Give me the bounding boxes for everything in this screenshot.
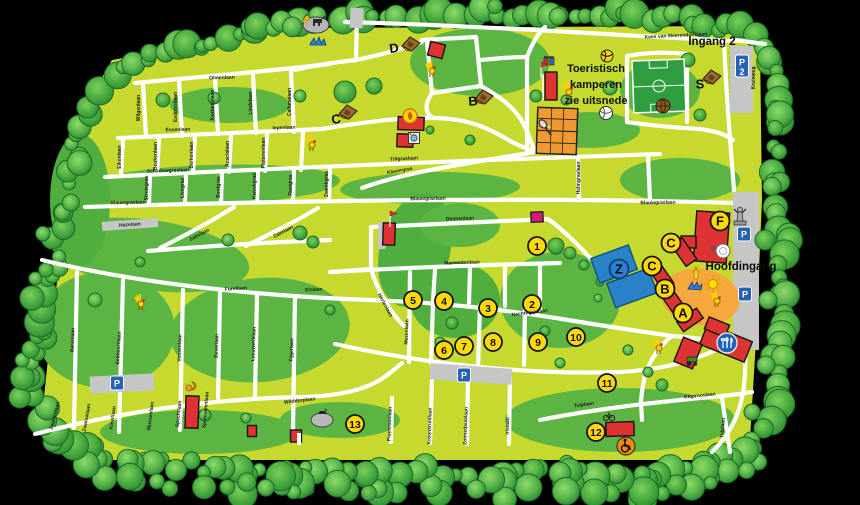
sun-core (709, 280, 718, 289)
tree-icon (643, 367, 653, 377)
building-flag (383, 223, 396, 245)
street-label: Liesgras (180, 178, 186, 199)
street-label: Vossenlaan (177, 334, 184, 362)
building-12 (606, 422, 634, 437)
parking-sign-label: P (742, 290, 748, 300)
squirrel-head (185, 383, 188, 386)
petting-zoo-icon (303, 16, 329, 33)
bottle-body (694, 270, 698, 279)
road (478, 305, 480, 368)
street-label: Kruinweg (751, 67, 757, 90)
tree-icon (294, 90, 306, 102)
letter-marker-B: B (656, 280, 675, 299)
entrance-label: Hoofdingang (706, 261, 777, 273)
number-marker-13: 13 (346, 415, 364, 433)
tree-icon (757, 356, 775, 374)
parking-sign: P (738, 227, 751, 241)
street-label: Zwenkgras (324, 171, 330, 197)
marker-letter-text: C (647, 259, 657, 274)
letter-marker-B: B (468, 93, 479, 109)
tree-icon (564, 247, 576, 259)
map-canvas: PPPPP2 DCBSFCCBAZ12345678910111213 Olmen… (0, 0, 860, 505)
fire-badge-icon (403, 109, 417, 123)
street-label: Irislaan (505, 417, 512, 435)
building-near-D (427, 41, 445, 58)
parking-sign-label: P (739, 58, 745, 68)
tree-icon (135, 257, 145, 267)
road (431, 302, 433, 363)
marker-number-text: 6 (441, 345, 447, 357)
tennis-ball (547, 125, 551, 129)
street-label: Berenlaan (70, 328, 77, 352)
marker-number-text: 11 (601, 378, 612, 390)
spoon (725, 337, 728, 342)
tree-icon (446, 317, 458, 329)
plate (716, 244, 730, 258)
tree-icon (257, 479, 274, 496)
tree-icon (67, 150, 92, 175)
entrance-label: Ingang 2 (688, 36, 735, 48)
marker-number-text: 9 (535, 337, 541, 349)
tourist-camping-note: Toeristisch (567, 63, 625, 75)
marker-number-text: 12 (590, 427, 602, 439)
tree-icon (763, 177, 781, 195)
tree-icon (361, 485, 376, 500)
tree-icon (771, 144, 786, 159)
tree-icon (744, 404, 760, 420)
number-marker-9: 9 (529, 333, 547, 351)
road (433, 270, 435, 301)
wheelchair-badge-icon (617, 437, 635, 455)
tennis-court (536, 107, 578, 154)
tree-icon (759, 291, 777, 309)
letter-marker-F: F (711, 212, 730, 231)
tree-icon (467, 480, 485, 498)
tree-icon (36, 226, 50, 240)
rooster-body (429, 68, 435, 74)
street-label: Essenlaan (165, 127, 190, 134)
street-label: Iepenlaan (272, 125, 295, 132)
tree-icon (117, 463, 144, 490)
tree-icon (366, 78, 382, 94)
washer-knob (410, 133, 412, 135)
marker-letter-text: A (678, 306, 688, 321)
tree-icon (465, 135, 475, 145)
tree-icon (664, 5, 682, 23)
parking-sign-label: P (461, 371, 467, 381)
marker-letter-text: Z (615, 262, 623, 277)
tourist-camping-note: kamperen (570, 79, 622, 91)
tree-icon (307, 236, 319, 248)
number-marker-1: 1 (528, 237, 546, 255)
street-label: Beverlaan (214, 334, 221, 358)
building-magenta (531, 212, 544, 223)
parking-sign: P2 (736, 55, 749, 77)
grass-patch (170, 87, 290, 123)
street-label: Pioenrooslaan (386, 407, 393, 442)
tree-icon (555, 358, 565, 368)
building-west (185, 396, 199, 428)
street-label: Blauwgraslaan (410, 196, 445, 203)
cutlery-badge-icon (717, 333, 737, 353)
marker-letter-text: C (666, 236, 676, 251)
street-label: Bentgras (216, 176, 222, 198)
street-label: Blauwgraslaan (640, 200, 675, 207)
head (624, 439, 627, 442)
marker-letter-text: B (660, 282, 669, 297)
tree-icon (149, 474, 164, 489)
road (301, 131, 303, 170)
parking-sign-number: 2 (739, 67, 744, 77)
road (641, 403, 642, 420)
street-label: Berkenlaan (189, 142, 195, 169)
tree-icon (165, 459, 186, 480)
tree-icon (581, 479, 608, 505)
tree-icon (241, 413, 251, 423)
marker-letter-text: S (696, 77, 705, 92)
street-label: Struisgras (144, 175, 150, 200)
street-label: Beukenlaan (153, 142, 159, 170)
street-label: Blauwgraslaan (110, 200, 145, 207)
number-marker-4: 4 (435, 292, 453, 310)
street-label: Kastanjelaan (210, 90, 216, 121)
tree-icon (20, 286, 45, 311)
tree-icon (426, 126, 434, 134)
street-label: Kweekgras (252, 173, 258, 200)
rooster-comb (433, 66, 436, 69)
street-label: Dennenlaan (446, 216, 475, 223)
rooster-body (138, 301, 144, 307)
street-label: Raaigras (288, 174, 294, 195)
tree-icon (293, 226, 307, 240)
number-marker-12: 12 (587, 423, 605, 441)
marker-number-text: 7 (461, 341, 467, 353)
number-marker-3: 3 (479, 299, 497, 317)
tractor-wheel (694, 362, 697, 365)
road (143, 83, 146, 137)
tree-icon (549, 8, 566, 25)
campground-map: PPPPP2 DCBSFCCBAZ12345678910111213 Olmen… (0, 0, 860, 505)
grass-patch (620, 158, 740, 202)
tree-icon (282, 17, 302, 37)
number-marker-11: 11 (598, 374, 616, 392)
tractor-wheel (687, 361, 692, 366)
street-label: Eikenlaan (117, 145, 123, 168)
marker-letter-text: F (716, 214, 724, 229)
football-brown-icon (656, 99, 670, 113)
marker-number-text: 1 (534, 241, 540, 253)
parking-sign-label: P (114, 379, 120, 389)
tree-icon (530, 90, 542, 102)
tree-icon (704, 476, 717, 489)
road (293, 297, 295, 430)
number-marker-6: 6 (435, 341, 453, 359)
tree-icon (88, 293, 102, 307)
rooster-comb (718, 296, 721, 299)
volleyball-white-icon (600, 107, 613, 120)
street-label: Lindelaan (248, 91, 254, 114)
letter-marker-Z: Z (610, 260, 629, 279)
rooster-body (309, 142, 315, 148)
road (331, 269, 371, 272)
statue-head (738, 207, 743, 212)
street-label: Tijgerlaan (289, 338, 296, 362)
tree-icon (623, 345, 633, 355)
rooster-comb (660, 343, 663, 346)
marker-letter-text: B (468, 93, 479, 109)
statue-base (734, 221, 746, 225)
rooster-comb (313, 140, 316, 143)
washer-door (411, 135, 417, 141)
tree-icon (193, 476, 216, 499)
road (469, 268, 470, 303)
street-label: Olmenlaan (209, 75, 235, 82)
volleyball-yellow-icon (601, 50, 613, 62)
building-small (248, 426, 257, 437)
parking-sign: P (739, 287, 752, 301)
number-marker-7: 7 (455, 337, 473, 355)
tree-icon (488, 0, 503, 14)
marker-number-text: 5 (410, 295, 416, 307)
playset-blue (550, 58, 554, 65)
tree-icon (552, 477, 579, 504)
street-label: Esdoornlaan (173, 92, 179, 122)
street-label: Callunalaan (287, 88, 293, 116)
parking-sign: P (111, 376, 124, 390)
street-label: Marmottenlaan (444, 259, 480, 266)
washer-icon (409, 133, 420, 144)
letter-marker-S: S (696, 77, 705, 92)
letter-marker-C: C (643, 257, 662, 276)
tree-icon (62, 194, 79, 211)
road (409, 272, 410, 362)
street-label: Platanenlaan (261, 138, 267, 169)
tree-icon (39, 263, 53, 277)
rooster-comb (142, 299, 145, 302)
number-marker-10: 10 (567, 328, 585, 346)
tree-icon (334, 81, 356, 103)
tree-icon (594, 294, 602, 302)
street-label: Leeuweriklaan (250, 327, 257, 362)
parking-sign-label: P (741, 230, 747, 240)
number-marker-8: 8 (484, 333, 502, 351)
street-label: Acacialaan (225, 141, 231, 167)
tree-icon (325, 305, 335, 315)
marker-number-text: 13 (349, 419, 361, 431)
north-drive (349, 8, 363, 29)
marker-number-text: 3 (485, 303, 491, 315)
street-label: Wilgenlaan (136, 95, 142, 121)
tree-icon (156, 93, 170, 107)
parking-sign: P (458, 368, 471, 382)
street-label: Helmgraslaan (576, 162, 582, 195)
marker-number-text: 4 (441, 296, 447, 308)
statue-shape (737, 212, 743, 221)
tree-icon (694, 109, 706, 121)
tree-icon (238, 473, 256, 491)
tree-icon (656, 379, 668, 391)
rooster-body (714, 298, 720, 304)
number-marker-5: 5 (404, 291, 422, 309)
building-small-door (297, 433, 301, 445)
letter-marker-A: A (674, 304, 693, 323)
tree-icon (755, 230, 775, 250)
tree-icon (548, 238, 564, 254)
marker-number-text: 10 (570, 332, 582, 344)
sun-icon (704, 275, 722, 293)
bird (305, 16, 309, 20)
street-label: Mezenlaan (404, 319, 411, 344)
letter-marker-C: C (662, 234, 681, 253)
tree-icon (579, 260, 589, 270)
tree-icon (222, 234, 234, 246)
rooster-body (656, 345, 662, 351)
tree-icon (324, 470, 351, 497)
marker-number-text: 8 (490, 337, 496, 349)
tree-icon (768, 120, 783, 135)
road (648, 155, 650, 201)
street-label: Elslaan (305, 287, 323, 294)
tourist-camping-note: zie uitsnede (565, 95, 628, 107)
building-reception-tower (545, 72, 557, 100)
bottle-neck (695, 267, 697, 270)
rock (311, 413, 333, 427)
tree-icon (220, 479, 235, 494)
